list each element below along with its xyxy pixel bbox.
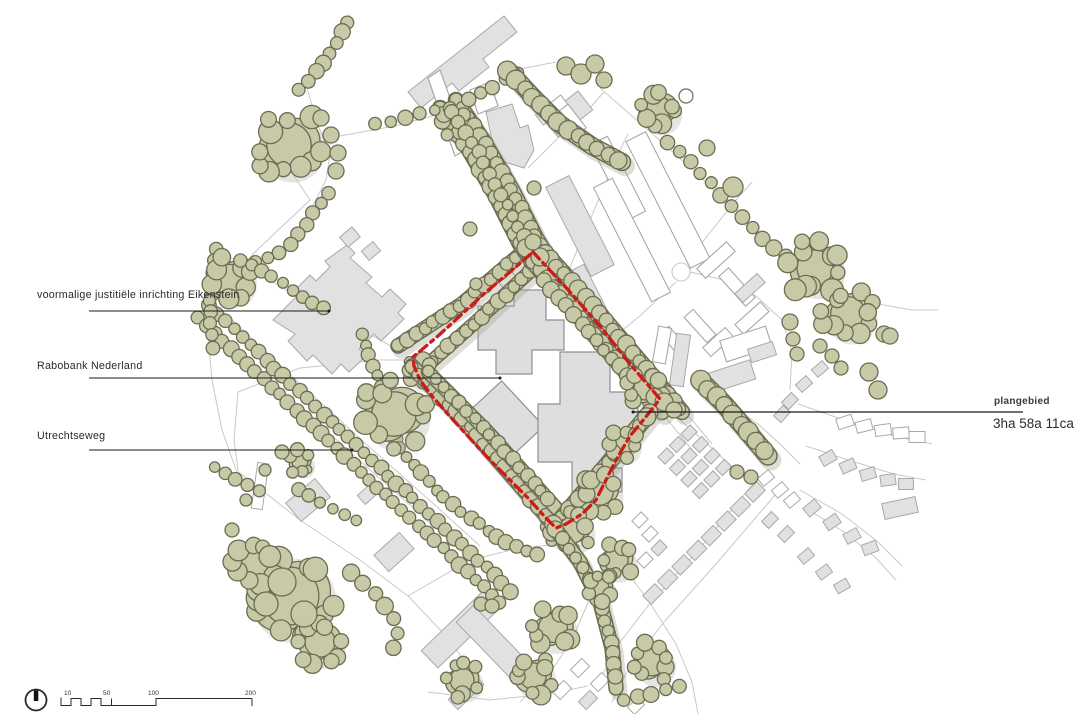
svg-text:200: 200 xyxy=(245,690,256,697)
svg-text:plangebied: plangebied xyxy=(994,396,1050,407)
svg-text:100: 100 xyxy=(148,690,159,697)
svg-text:3ha 58a 11ca: 3ha 58a 11ca xyxy=(993,416,1074,431)
svg-text:voormalige justitiële inrichti: voormalige justitiële inrichting Eikenst… xyxy=(37,289,240,301)
svg-text:50: 50 xyxy=(103,690,111,697)
svg-text:Utrechtseweg: Utrechtseweg xyxy=(37,430,105,442)
svg-text:Rabobank Nederland: Rabobank Nederland xyxy=(37,360,143,372)
svg-text:10: 10 xyxy=(64,690,72,697)
